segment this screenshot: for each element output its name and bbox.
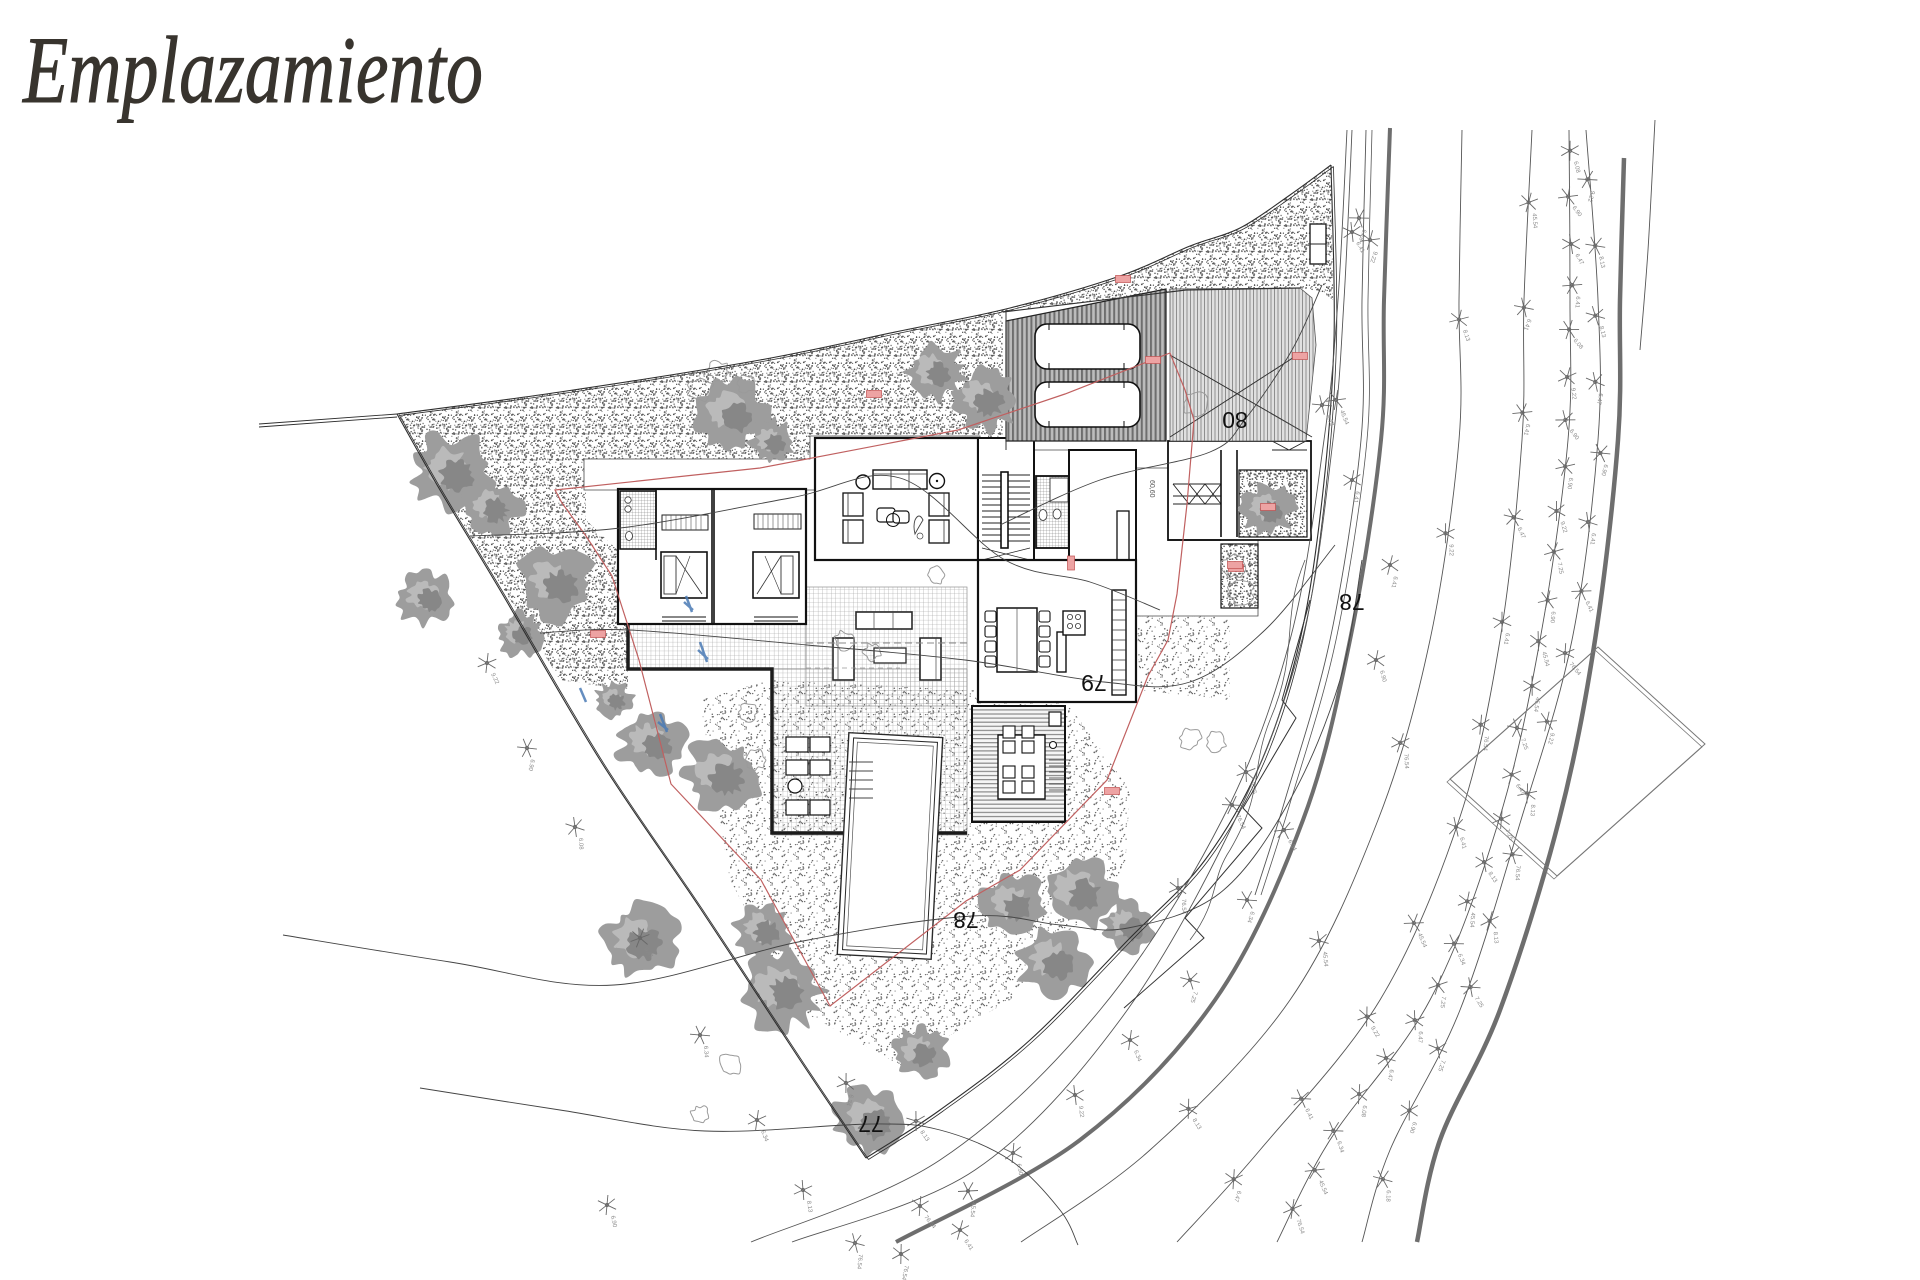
svg-text:9.22: 9.22 (1369, 1026, 1380, 1040)
svg-text:6.47: 6.47 (1232, 1190, 1241, 1204)
svg-text:8.13: 8.13 (805, 1200, 813, 1213)
svg-text:6.34: 6.34 (1132, 1050, 1142, 1064)
svg-text:9.22: 9.22 (1448, 544, 1454, 556)
svg-text:8.13: 8.13 (1597, 256, 1605, 269)
svg-text:6.41: 6.41 (1354, 241, 1365, 255)
svg-text:6.90: 6.90 (1378, 670, 1387, 683)
svg-text:8.13: 8.13 (1529, 804, 1536, 817)
svg-text:6.90: 6.90 (609, 1215, 617, 1228)
svg-text:6.34: 6.34 (702, 1046, 709, 1059)
svg-text:9.22: 9.22 (1077, 1106, 1084, 1119)
svg-text:6.90: 6.90 (1015, 1163, 1023, 1176)
svg-text:6.90: 6.90 (1599, 463, 1608, 476)
svg-text:7.25: 7.25 (1436, 1059, 1446, 1073)
svg-text:6.41: 6.41 (1588, 533, 1596, 546)
svg-text:6.47: 6.47 (1573, 253, 1584, 267)
svg-text:Emplazamiento: Emplazamiento (21, 17, 483, 123)
svg-text:9.22: 9.22 (1586, 190, 1596, 204)
svg-text:76.54: 76.54 (1481, 736, 1488, 752)
svg-text:6.41: 6.41 (1389, 576, 1397, 589)
svg-text:76.54: 76.54 (855, 1254, 863, 1270)
svg-text:6.41: 6.41 (1352, 491, 1360, 504)
svg-text:6.47: 6.47 (1516, 527, 1527, 541)
svg-text:8.13: 8.13 (918, 1130, 930, 1144)
svg-text:78: 78 (953, 907, 979, 933)
svg-text:6.18: 6.18 (1384, 1190, 1390, 1203)
svg-text:6.41: 6.41 (1502, 632, 1510, 645)
svg-text:78: 78 (1339, 589, 1365, 615)
svg-text:6.34: 6.34 (759, 1130, 769, 1144)
svg-text:6.90: 6.90 (1549, 611, 1556, 624)
svg-text:6.47: 6.47 (1386, 1069, 1394, 1082)
svg-text:80: 80 (1222, 407, 1248, 433)
svg-text:6.90: 6.90 (1568, 428, 1580, 441)
svg-text:7.25: 7.25 (1438, 996, 1446, 1009)
svg-text:6.41: 6.41 (1303, 1108, 1314, 1122)
svg-text:6.47: 6.47 (1416, 1031, 1422, 1044)
svg-text:76.54: 76.54 (1234, 814, 1246, 831)
svg-text:8.13: 8.13 (1597, 326, 1606, 339)
svg-text:9.22: 9.22 (1368, 250, 1378, 264)
svg-text:6.90: 6.90 (1571, 205, 1583, 218)
svg-text:7.25: 7.25 (1473, 996, 1485, 1010)
svg-text:6.34: 6.34 (1335, 1141, 1344, 1155)
svg-text:9.22: 9.22 (489, 672, 500, 686)
svg-text:7.25: 7.25 (1556, 562, 1564, 575)
svg-text:6.34: 6.34 (1245, 910, 1255, 924)
svg-text:45.54: 45.54 (1531, 213, 1538, 229)
svg-text:77: 77 (858, 1111, 884, 1137)
svg-text:8.13: 8.13 (1492, 932, 1499, 945)
svg-text:6.47: 6.47 (1595, 392, 1603, 405)
svg-text:6.08: 6.08 (1359, 1105, 1367, 1118)
svg-text:6.08: 6.08 (1572, 338, 1585, 351)
svg-text:7.25: 7.25 (1188, 990, 1197, 1004)
svg-text:6.41: 6.41 (962, 1239, 974, 1253)
svg-text:6.90: 6.90 (526, 759, 534, 772)
svg-text:6.90: 6.90 (1408, 1121, 1418, 1135)
svg-text:76.54: 76.54 (1295, 1219, 1306, 1236)
svg-text:76.54: 76.54 (1513, 865, 1520, 881)
svg-text:7.25: 7.25 (1519, 738, 1529, 752)
svg-text:45.54: 45.54 (1416, 932, 1428, 949)
svg-text:79: 79 (1081, 670, 1107, 696)
svg-text:6.08: 6.08 (577, 838, 584, 851)
svg-text:45.54: 45.54 (1317, 1180, 1329, 1197)
svg-text:45.54: 45.54 (1338, 410, 1349, 427)
svg-text:6.41: 6.41 (1573, 296, 1580, 309)
svg-text:8.13: 8.13 (1191, 1118, 1202, 1132)
svg-text:6.41: 6.41 (1584, 600, 1595, 614)
svg-text:76.54: 76.54 (900, 1265, 909, 1280)
svg-text:6.90: 6.90 (1566, 477, 1574, 490)
svg-text:6.08: 6.08 (1572, 161, 1581, 174)
svg-text:9.22: 9.22 (1559, 521, 1568, 535)
svg-text:6.34: 6.34 (1456, 953, 1466, 967)
svg-text:8.13: 8.13 (1461, 329, 1471, 343)
svg-text:76.54: 76.54 (1402, 754, 1409, 770)
svg-text:6.41: 6.41 (1458, 837, 1467, 850)
svg-text:8.13: 8.13 (1486, 871, 1498, 885)
svg-text:45.54: 45.54 (1321, 951, 1328, 967)
svg-text:45.54: 45.54 (1540, 651, 1550, 668)
svg-text:45.54: 45.54 (1468, 912, 1475, 928)
svg-text:60,60: 60,60 (1148, 480, 1155, 498)
